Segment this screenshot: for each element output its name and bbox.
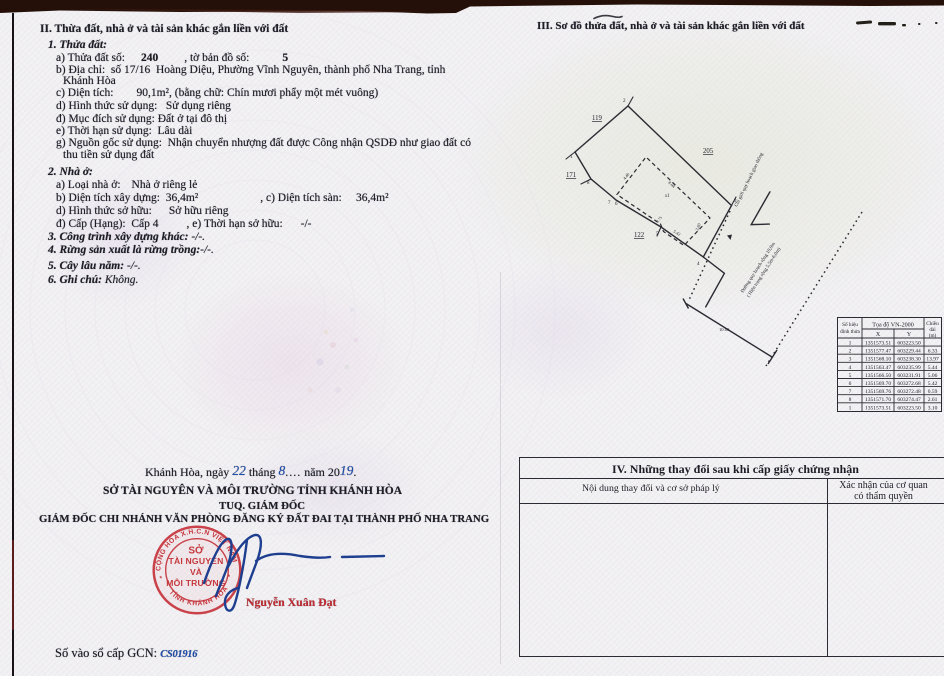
svg-text:đỉnh thửa: đỉnh thửa [840,329,860,335]
svg-text:X: X [876,332,881,338]
svg-text:5: 5 [849,373,852,379]
svg-text:Số hiệu: Số hiệu [842,321,858,328]
svg-text:5.06: 5.06 [928,373,938,379]
svg-text:1351568.10: 1351568.10 [865,357,891,363]
svg-text:603272.68: 603272.68 [897,381,921,387]
svg-text:Chỉ giới quy hoạch giao thông: Chỉ giới quy hoạch giao thông [734,152,765,208]
svg-text:5.42: 5.42 [928,381,938,387]
svg-text:603229.44: 603229.44 [897,349,921,355]
svg-text:5.44: 5.44 [928,365,938,371]
svg-text:Y: Y [907,332,912,338]
svg-text:603235.99: 603235.99 [897,365,921,371]
svg-text:603238.30: 603238.30 [897,357,921,363]
svg-text:603223.50: 603223.50 [897,405,921,411]
svg-text:205: 205 [703,148,714,155]
svg-text:1351573.51: 1351573.51 [865,405,891,411]
svg-text:603231.91: 603231.91 [897,373,921,379]
svg-text:4: 4 [849,365,852,371]
svg-text:1: 1 [849,341,852,347]
svg-text:1351571.70: 1351571.70 [865,397,891,403]
svg-text:8: 8 [587,181,590,186]
svg-text:119: 119 [592,115,603,122]
svg-text:(m): (m) [929,332,937,339]
svg-text:7: 7 [849,389,852,395]
svg-text:122: 122 [634,232,645,239]
svg-text:3: 3 [849,357,852,363]
svg-text:x1: x1 [664,194,670,199]
svg-text:Tọa độ VN-2000: Tọa độ VN-2000 [872,323,914,329]
svg-text:Chiều: Chiều [926,320,939,327]
svg-text:1351563.47: 1351563.47 [865,365,891,371]
svg-text:1351577.47: 1351577.47 [865,349,891,355]
svg-text:603223.50: 603223.50 [897,341,921,347]
svg-text:1351569.76: 1351569.76 [865,389,891,395]
svg-text:13.97: 13.97 [926,357,939,363]
svg-text:8: 8 [849,397,852,403]
svg-text:1: 1 [849,405,852,411]
svg-text:1: 1 [570,155,573,160]
svg-text:4: 4 [697,262,700,267]
svg-text:0.59: 0.59 [928,389,938,395]
svg-text:3.10: 3.10 [928,405,938,411]
svg-text:8.04: 8.04 [667,180,677,189]
svg-text:603272.48: 603272.48 [897,389,921,395]
svg-text:1351566.50: 1351566.50 [865,373,891,379]
svg-text:171: 171 [566,172,576,179]
svg-text:603274.47: 603274.47 [897,397,921,403]
svg-text:4.40: 4.40 [622,172,631,181]
svg-text:2: 2 [623,99,626,104]
svg-text:7: 7 [608,201,611,206]
svg-text:10.00: 10.00 [719,327,730,332]
svg-text:6: 6 [849,381,852,387]
svg-text:2.61: 2.61 [928,397,938,403]
svg-text:6.33: 6.33 [928,349,938,355]
svg-text:0.75: 0.75 [655,215,663,224]
svg-text:6: 6 [615,202,618,207]
svg-text:2: 2 [849,349,852,355]
svg-text:3.60: 3.60 [694,223,701,232]
svg-text:1351569.70: 1351569.70 [865,381,891,387]
svg-text:1351573.51: 1351573.51 [865,341,891,347]
